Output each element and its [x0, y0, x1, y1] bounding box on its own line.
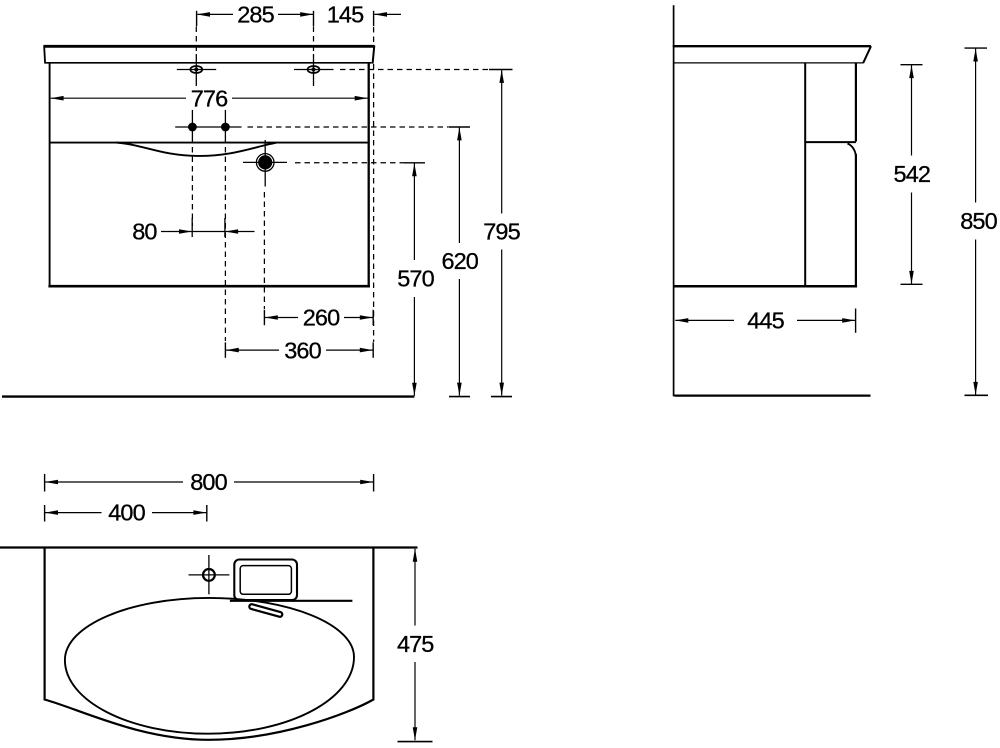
svg-text:145: 145 [327, 2, 364, 28]
svg-text:795: 795 [483, 219, 520, 245]
svg-text:776: 776 [191, 85, 228, 111]
svg-text:400: 400 [108, 500, 145, 526]
svg-text:80: 80 [132, 219, 157, 245]
svg-text:285: 285 [237, 2, 274, 28]
svg-text:360: 360 [284, 337, 321, 363]
svg-text:445: 445 [747, 307, 784, 333]
svg-text:800: 800 [190, 469, 227, 495]
svg-text:570: 570 [397, 266, 434, 292]
svg-text:620: 620 [441, 248, 478, 274]
svg-text:850: 850 [960, 208, 997, 234]
svg-text:542: 542 [894, 161, 931, 187]
svg-text:260: 260 [303, 305, 340, 331]
svg-text:475: 475 [397, 631, 434, 657]
